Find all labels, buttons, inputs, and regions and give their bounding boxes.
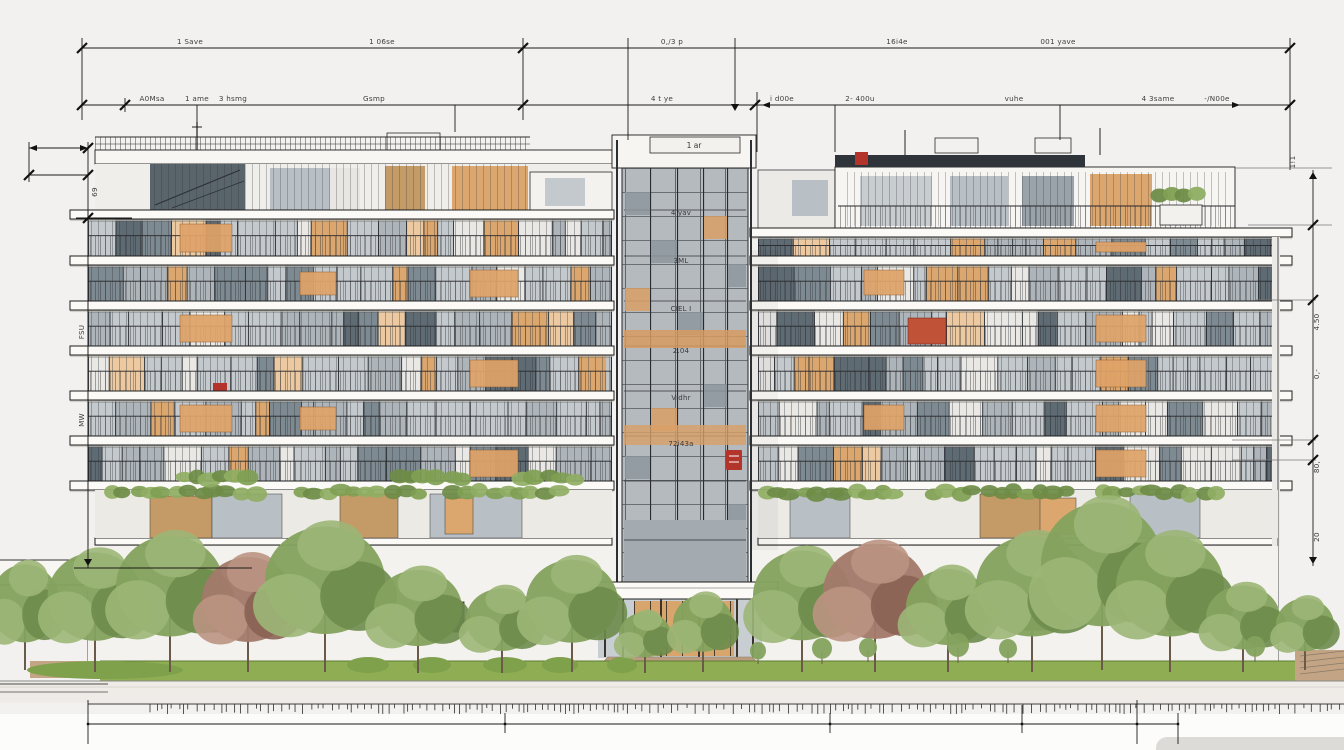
tower-floor-label-3: CIEL I — [671, 305, 692, 313]
tree-foliage — [38, 591, 95, 643]
railing-posts — [88, 371, 612, 391]
railing-posts — [758, 371, 1278, 391]
dimension-dot — [87, 723, 89, 725]
red-panel — [908, 318, 946, 344]
tower-rail — [750, 140, 752, 600]
tree-foliage — [1074, 495, 1142, 553]
elevation-canvas: 1 Save 1 06se 0,/3 p 16i4e 001 yave A0Ms… — [0, 0, 1344, 750]
mullion-texture — [150, 164, 528, 210]
balcony-slab — [750, 301, 1292, 310]
tower-red-emblem — [726, 450, 742, 470]
lit-window — [1096, 360, 1146, 387]
tree-foliage — [689, 591, 723, 618]
tower-floor-label-1: 4 yav — [671, 209, 691, 217]
tree-foliage — [743, 590, 802, 643]
roof-overhang — [835, 155, 1085, 167]
tree-foliage — [1303, 615, 1340, 649]
dimension-dot — [829, 723, 831, 725]
dim-label-row2-1: A0Msa — [139, 94, 164, 103]
vine-foliage — [246, 486, 267, 502]
curtain-panel — [625, 192, 650, 215]
vine-foliage — [411, 488, 427, 499]
tower-top-label: 1 ar — [687, 141, 703, 150]
vine-foliage — [471, 483, 488, 498]
curtain-panel — [728, 264, 746, 287]
podium-panel — [430, 494, 522, 538]
rooftop-red-unit — [855, 152, 868, 165]
balcony-slab — [750, 346, 1292, 355]
dim-label-row2-6: i d00e — [770, 94, 794, 103]
podium-panel — [212, 494, 282, 538]
dim-label-row2-9: 4 3same — [1142, 94, 1175, 103]
lit-window — [1096, 242, 1146, 252]
dim-label-row2-8: vuhe — [1005, 94, 1024, 103]
tree-foliage — [398, 565, 447, 601]
tree-foliage — [485, 585, 525, 614]
railing-posts — [758, 416, 1278, 436]
vine-foliage — [452, 473, 471, 486]
dim-label-right-top: 1!1 — [1288, 156, 1297, 169]
tower-base-glass — [624, 520, 746, 588]
tree-foliage — [459, 616, 502, 653]
balcony-slab — [750, 436, 1292, 445]
dimension-dot — [504, 723, 506, 725]
tree-foliage — [1105, 580, 1170, 639]
dim-label-right-2: 0,- — [1312, 369, 1321, 379]
curtain-panel — [625, 456, 650, 479]
tree-foliage — [9, 560, 48, 597]
lit-window — [180, 224, 232, 252]
tree-foliage — [667, 620, 703, 654]
dim-label-row2-4: Gsmp — [363, 94, 385, 103]
vine-foliage — [1058, 486, 1075, 497]
vine-foliage — [549, 485, 570, 496]
dim-label-right-3: 80, — [1312, 461, 1321, 473]
dim-label-left-top: 69 — [90, 187, 99, 197]
dim-label-row2-2: 1 ame — [185, 94, 209, 103]
railing-posts — [758, 246, 1278, 256]
lit-window — [1096, 450, 1146, 477]
balcony-slab — [70, 391, 614, 400]
lit-window — [470, 270, 518, 297]
hedge — [347, 657, 389, 673]
architectural-elevation-drawing: 1 Save 1 06se 0,/3 p 16i4e 001 yave A0Ms… — [0, 0, 1344, 750]
dim-label-row1-4: 16i4e — [886, 37, 908, 46]
dimension-dot — [1136, 723, 1138, 725]
tree-foliage — [145, 530, 205, 577]
roof-slab — [95, 150, 612, 164]
dim-label-row1-5: 001 yave — [1040, 37, 1076, 46]
tree-foliage — [614, 632, 645, 658]
railing-posts — [758, 281, 1278, 301]
vine-foliage — [566, 474, 584, 486]
hedge — [607, 657, 637, 673]
shrub-foliage — [999, 639, 1017, 658]
dim-label-right-1: 4.50 — [1312, 313, 1321, 330]
tower-floor-label-5: Vidhr — [671, 394, 690, 402]
dim-label-row1-3: 0,/3 p — [661, 37, 683, 46]
railing-posts — [88, 281, 612, 301]
shrub-foliage — [750, 642, 766, 660]
dim-label-row2-5: 4 t ye — [651, 94, 673, 103]
vine-foliage — [179, 485, 198, 497]
railing-posts — [88, 326, 612, 346]
planter-box — [1160, 205, 1202, 225]
balcony-slab — [750, 391, 1292, 400]
tree-foliage — [965, 580, 1032, 639]
dim-label-row1-2: 1 06se — [369, 37, 395, 46]
vine-foliage — [367, 485, 386, 497]
shrub-foliage — [1245, 636, 1265, 657]
tree-foliage — [105, 580, 170, 639]
window — [792, 180, 828, 216]
railing-posts — [758, 326, 1278, 346]
vine-foliage — [214, 485, 235, 497]
curtain-panel — [704, 216, 727, 239]
tree-foliage — [551, 555, 603, 594]
dim-label-left-low: MW — [77, 413, 86, 427]
vine-foliage — [113, 487, 130, 499]
tower-floor-label-4: 2.04 — [673, 347, 690, 355]
tree-foliage — [898, 603, 948, 648]
lit-window — [300, 272, 336, 295]
tree-foliage — [1199, 614, 1243, 652]
lawn — [100, 661, 1344, 681]
balcony-slab — [70, 346, 614, 355]
podium-panel — [445, 498, 473, 534]
lit-window — [470, 360, 518, 387]
balcony-slab — [750, 228, 1292, 237]
tree-foliage — [851, 540, 909, 584]
dim-label-left-mid: FSU — [77, 325, 86, 340]
tower-floor-label-2: 3ML — [674, 257, 689, 265]
tower-lit-band — [624, 330, 746, 348]
tree-foliage — [193, 595, 248, 645]
roof-rail-posts — [95, 137, 530, 150]
dim-label-row2-7: 2- 400u — [845, 94, 874, 103]
tree-foliage — [1226, 582, 1267, 612]
vine-foliage — [150, 486, 170, 498]
lit-window — [180, 405, 232, 432]
vine-foliage — [237, 469, 259, 485]
lawn-mound — [27, 661, 183, 679]
lit-window — [180, 315, 232, 342]
planter-foliage — [1188, 187, 1206, 201]
tree-foliage — [297, 520, 364, 571]
dim-label-row1-1: 1 Save — [177, 37, 203, 46]
shrub-foliage — [812, 638, 832, 659]
lit-window — [864, 270, 904, 295]
tree-foliage — [929, 564, 976, 600]
railing-posts — [88, 416, 612, 436]
lit-window — [300, 407, 336, 430]
tree-foliage — [633, 610, 662, 631]
tree-foliage — [568, 587, 627, 641]
balcony-slab — [750, 256, 1292, 265]
lit-window — [1096, 315, 1146, 342]
lit-window — [470, 450, 518, 477]
dim-label-right-4: 20 — [1312, 532, 1321, 542]
dimension-dot — [1177, 723, 1179, 725]
balcony-slab — [70, 210, 614, 219]
curtain-panel — [625, 288, 650, 311]
vine-foliage — [962, 485, 981, 495]
tree-foliage — [253, 574, 325, 637]
hedge — [483, 657, 527, 673]
vine-foliage — [777, 488, 800, 500]
penthouse-window — [545, 178, 585, 206]
vine-foliage — [425, 469, 446, 485]
tree-foliage — [1029, 557, 1102, 630]
dim-label-row2-10: -/N00e — [1204, 94, 1230, 103]
tree-foliage — [1270, 622, 1305, 653]
lit-window — [1096, 405, 1146, 432]
tree-foliage — [813, 586, 875, 641]
plinth-band — [0, 681, 1344, 703]
shrub-foliage — [947, 633, 969, 657]
tower-rail — [616, 140, 618, 600]
tree-foliage — [701, 613, 739, 650]
vine-foliage — [1207, 486, 1224, 500]
vine-foliage — [1181, 487, 1198, 503]
tower-floor-label-6: 72i43a — [668, 440, 693, 448]
curtain-panel — [704, 384, 727, 407]
railing-posts — [88, 236, 612, 256]
tower-shadow — [752, 250, 778, 550]
balcony-slab — [70, 436, 614, 445]
lit-window — [864, 405, 904, 430]
tree-foliage — [1292, 595, 1324, 620]
tree-foliage — [365, 604, 418, 649]
corner-rounded-shape — [1156, 737, 1344, 750]
tree-foliage — [1145, 530, 1205, 577]
balcony-slab — [70, 256, 614, 265]
dimension-dot — [1021, 723, 1023, 725]
balcony-slab — [70, 301, 614, 310]
dim-label-row2-3: 3 hsmg — [219, 94, 247, 103]
railing-posts — [758, 461, 1278, 481]
shrub-foliage — [859, 638, 877, 657]
lower-margin — [0, 714, 1344, 750]
tree-foliage — [517, 596, 572, 645]
vine-foliage — [882, 489, 904, 500]
